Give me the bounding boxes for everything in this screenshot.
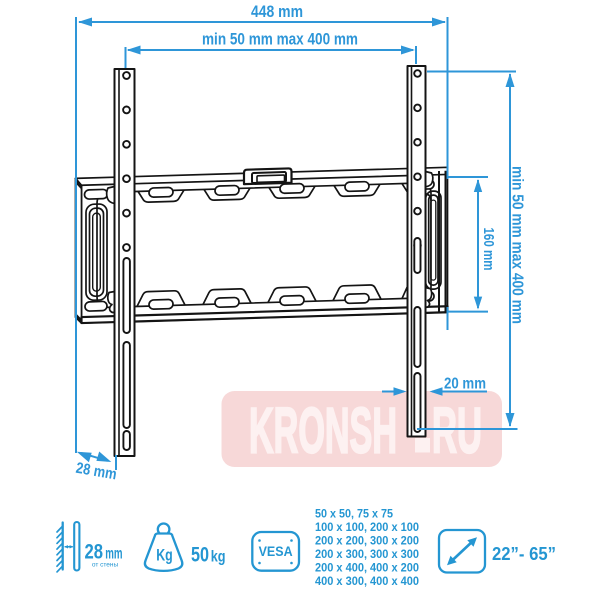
svg-text:200 x 400, 400 x 200: 200 x 400, 400 x 200	[315, 561, 419, 575]
svg-text:RU: RU	[432, 395, 482, 467]
svg-text:от стены: от стены	[92, 562, 119, 569]
svg-text:20 mm: 20 mm	[444, 376, 486, 393]
svg-text:50 x 50, 75 x 75: 50 x 50, 75 x 75	[315, 507, 393, 521]
svg-text:448 mm: 448 mm	[251, 3, 303, 21]
svg-text:KRONSH: KRONSH	[249, 395, 397, 467]
svg-text:200 x 200, 300 x 200: 200 x 200, 300 x 200	[315, 534, 419, 548]
svg-text:kg: kg	[211, 548, 226, 565]
svg-text:VESA: VESA	[259, 544, 293, 559]
svg-text:200 x 300, 300 x 300: 200 x 300, 300 x 300	[315, 547, 419, 561]
svg-text:Kg: Kg	[156, 546, 173, 564]
svg-text:100 x 100, 200 x 100: 100 x 100, 200 x 100	[315, 520, 419, 534]
svg-text:50: 50	[191, 542, 209, 566]
svg-text:min 50 mm max 400 mm: min 50 mm max 400 mm	[509, 166, 526, 324]
svg-text:mm: mm	[105, 546, 122, 563]
svg-text:160 mm: 160 mm	[480, 228, 497, 271]
svg-text:28: 28	[85, 540, 104, 564]
svg-text:22”- 65”: 22”- 65”	[492, 544, 556, 564]
svg-text:min 50 mm max 400 mm: min 50 mm max 400 mm	[202, 31, 358, 49]
svg-text:400 x 300, 400 x 400: 400 x 300, 400 x 400	[315, 574, 419, 588]
